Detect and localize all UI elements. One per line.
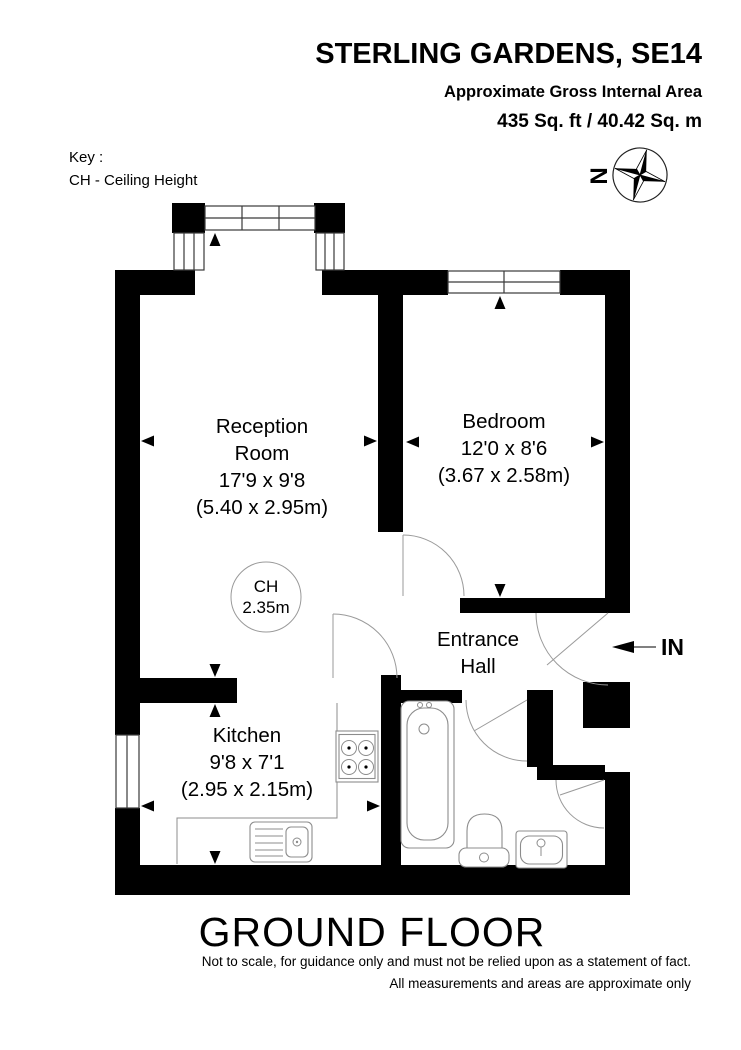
reception-name-line2: Room — [235, 442, 290, 465]
page-subtitle: Approximate Gross Internal Area — [444, 83, 703, 101]
entry-label: IN — [661, 634, 684, 660]
compass: N — [586, 142, 673, 208]
floorplan-page: STERLING GARDENS, SE14 Approximate Gross… — [0, 0, 741, 1050]
doors — [333, 535, 608, 828]
bathroom-door — [466, 700, 527, 761]
gross-internal-area: 435 Sq. ft / 40.42 Sq. m — [497, 111, 702, 132]
windows — [116, 206, 560, 808]
reception-dims-metric: (5.40 x 2.95m) — [196, 496, 328, 519]
kitchen-dims-metric: (2.95 x 2.15m) — [181, 778, 313, 801]
kitchen-window — [116, 735, 139, 808]
key-entry: CH - Ceiling Height — [69, 172, 198, 189]
compass-rose-icon — [607, 142, 673, 208]
bedroom-dims-metric: (3.67 x 2.58m) — [438, 464, 570, 487]
ceiling-height-label: CH — [254, 577, 279, 596]
reception-door — [333, 614, 397, 678]
toilet — [459, 814, 509, 867]
bedroom-door — [403, 535, 464, 596]
reception-dims-imperial: 17'9 x 9'8 — [219, 469, 305, 492]
ceiling-height-badge: CH 2.35m — [231, 562, 301, 632]
cupboard-door — [556, 780, 604, 828]
disclaimer-line1: Not to scale, for guidance only and must… — [202, 954, 691, 969]
disclaimer-line2: All measurements and areas are approxima… — [389, 976, 691, 991]
entrance-hall-line1: Entrance — [437, 628, 519, 651]
hob — [336, 731, 378, 782]
bathtub — [401, 701, 454, 848]
bedroom-window — [448, 271, 560, 293]
basin — [516, 831, 567, 868]
entry-marker: IN — [612, 634, 684, 660]
kitchen-name: Kitchen — [213, 724, 281, 747]
reception-name-line1: Reception — [216, 415, 308, 438]
front-door — [536, 613, 608, 685]
bedroom-dims-imperial: 12'0 x 8'6 — [461, 437, 547, 460]
entry-arrow-icon — [612, 641, 634, 653]
kitchen-dims-imperial: 9'8 x 7'1 — [209, 751, 284, 774]
kitchen-sink — [250, 822, 312, 862]
key-label: Key : — [69, 149, 103, 166]
floorplan-canvas: STERLING GARDENS, SE14 Approximate Gross… — [0, 0, 741, 1050]
page-title: STERLING GARDENS, SE14 — [315, 38, 702, 70]
entrance-hall-line2: Hall — [460, 655, 495, 678]
north-label: N — [586, 167, 613, 184]
bedroom-name: Bedroom — [462, 410, 545, 433]
floor-title: GROUND FLOOR — [199, 909, 546, 955]
ceiling-height-value: 2.35m — [242, 598, 289, 617]
